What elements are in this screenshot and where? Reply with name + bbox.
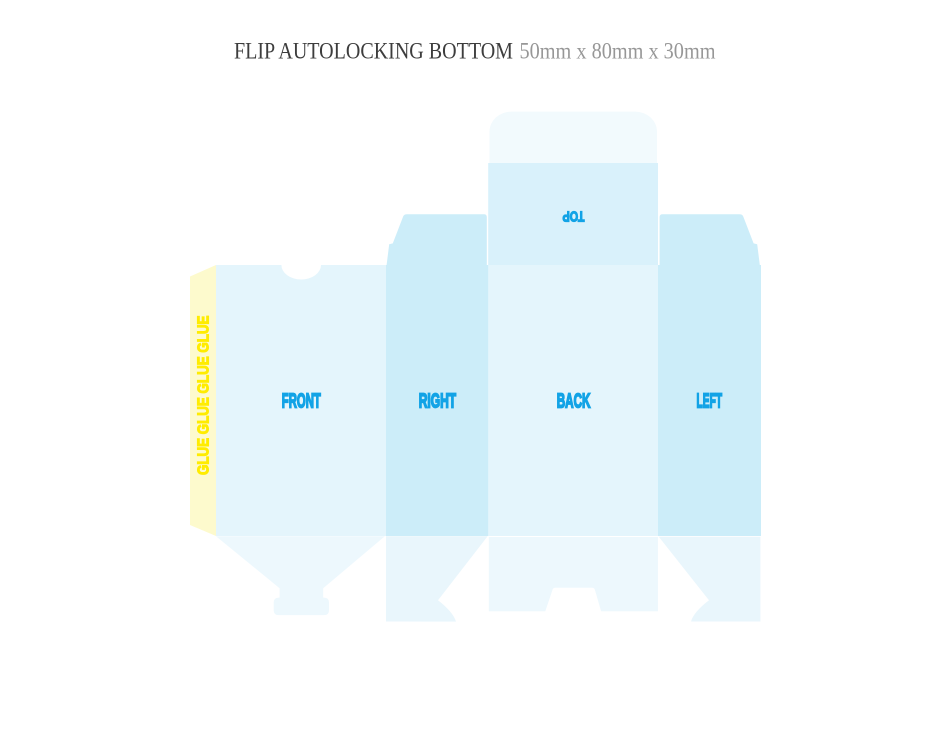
svg-text:BACK: BACK [557, 391, 591, 413]
svg-text:LEFT: LEFT [697, 391, 723, 413]
svg-text:RIGHT: RIGHT [419, 391, 456, 413]
svg-text:TOP: TOP [562, 207, 584, 223]
svg-text:GLUE GLUE GLUE GLUE: GLUE GLUE GLUE GLUE [195, 315, 212, 475]
svg-text:FLIP AUTOLOCKING BOTTOM: FLIP AUTOLOCKING BOTTOM [234, 39, 513, 65]
svg-text:FRONT: FRONT [282, 391, 321, 413]
svg-text:50mm x 80mm x 30mm: 50mm x 80mm x 30mm [520, 39, 716, 65]
